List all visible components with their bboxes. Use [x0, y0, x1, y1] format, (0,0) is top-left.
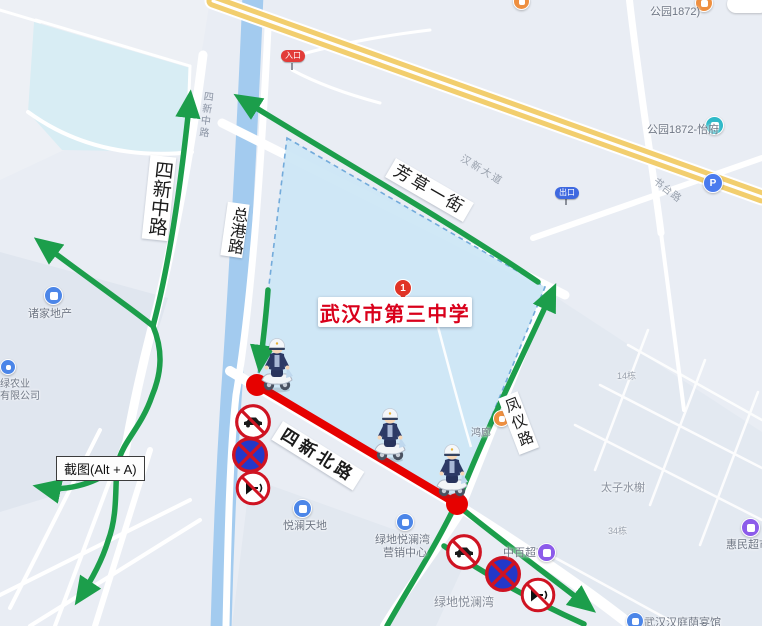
- screenshot-shortcut-tooltip: 截图(Alt + A): [56, 456, 145, 481]
- poi-label-honglang[interactable]: 鸿廊: [471, 424, 491, 439]
- poi-label-huimin-market[interactable]: 惠民超市: [726, 536, 762, 552]
- no-stopping-icon: [487, 558, 520, 591]
- poi-label-building14: 14栋: [617, 369, 636, 382]
- office-poi-icon[interactable]: [396, 513, 414, 531]
- school-name-label[interactable]: 武汉市第三中学: [318, 297, 472, 327]
- no-stopping-icon: [234, 439, 267, 472]
- entrance-badge[interactable]: 入口: [281, 50, 305, 62]
- poi-label-lvnongye-2[interactable]: 有限公司: [0, 387, 40, 402]
- parking-icon[interactable]: P: [703, 173, 723, 193]
- exit-badge-stem: [565, 199, 567, 205]
- residence-poi-icon[interactable]: [293, 499, 312, 518]
- no-horn-icon: [237, 472, 269, 504]
- poi-label-yuelan-tiandi[interactable]: 悦澜天地: [283, 517, 327, 533]
- no-motor-vehicles-icon: [448, 536, 481, 569]
- entrance-badge-stem: [291, 63, 293, 70]
- no-motor-vehicles-icon: [237, 406, 270, 439]
- map-canvas[interactable]: 四新中路 四新中路 总港路 芳草一街 汉新大道 四新北路 凤仪路 书台路 入口 …: [0, 0, 762, 626]
- supermarket-poi-icon[interactable]: [537, 543, 556, 562]
- poi-label-park1872-yifu[interactable]: 公园1872-怡府: [647, 121, 719, 137]
- company-poi-icon[interactable]: [0, 359, 16, 375]
- hotel-poi-icon[interactable]: [626, 612, 644, 626]
- no-horn-icon: [522, 579, 554, 611]
- poi-label-zhujia-realty[interactable]: 诸家地产: [28, 305, 72, 321]
- poi-label-lvdi-area[interactable]: 绿地悦澜湾: [434, 593, 494, 610]
- supermarket-poi-icon[interactable]: [741, 518, 760, 537]
- poi-label-park1872[interactable]: 公园1872): [650, 3, 700, 19]
- poi-label-lvdi-marketing-2[interactable]: 营销中心: [383, 544, 427, 560]
- map-control-card[interactable]: [727, 0, 762, 13]
- poi-label-taizi-shuixie[interactable]: 太子水榭: [601, 479, 645, 495]
- poi-label-hotel[interactable]: 武汉汉庭荫宴馆: [644, 614, 721, 626]
- company-poi-icon[interactable]: [44, 286, 63, 305]
- exit-badge[interactable]: 出口: [555, 187, 579, 199]
- numbered-marker[interactable]: 1: [394, 279, 412, 297]
- poi-label-building34: 34栋: [608, 524, 627, 537]
